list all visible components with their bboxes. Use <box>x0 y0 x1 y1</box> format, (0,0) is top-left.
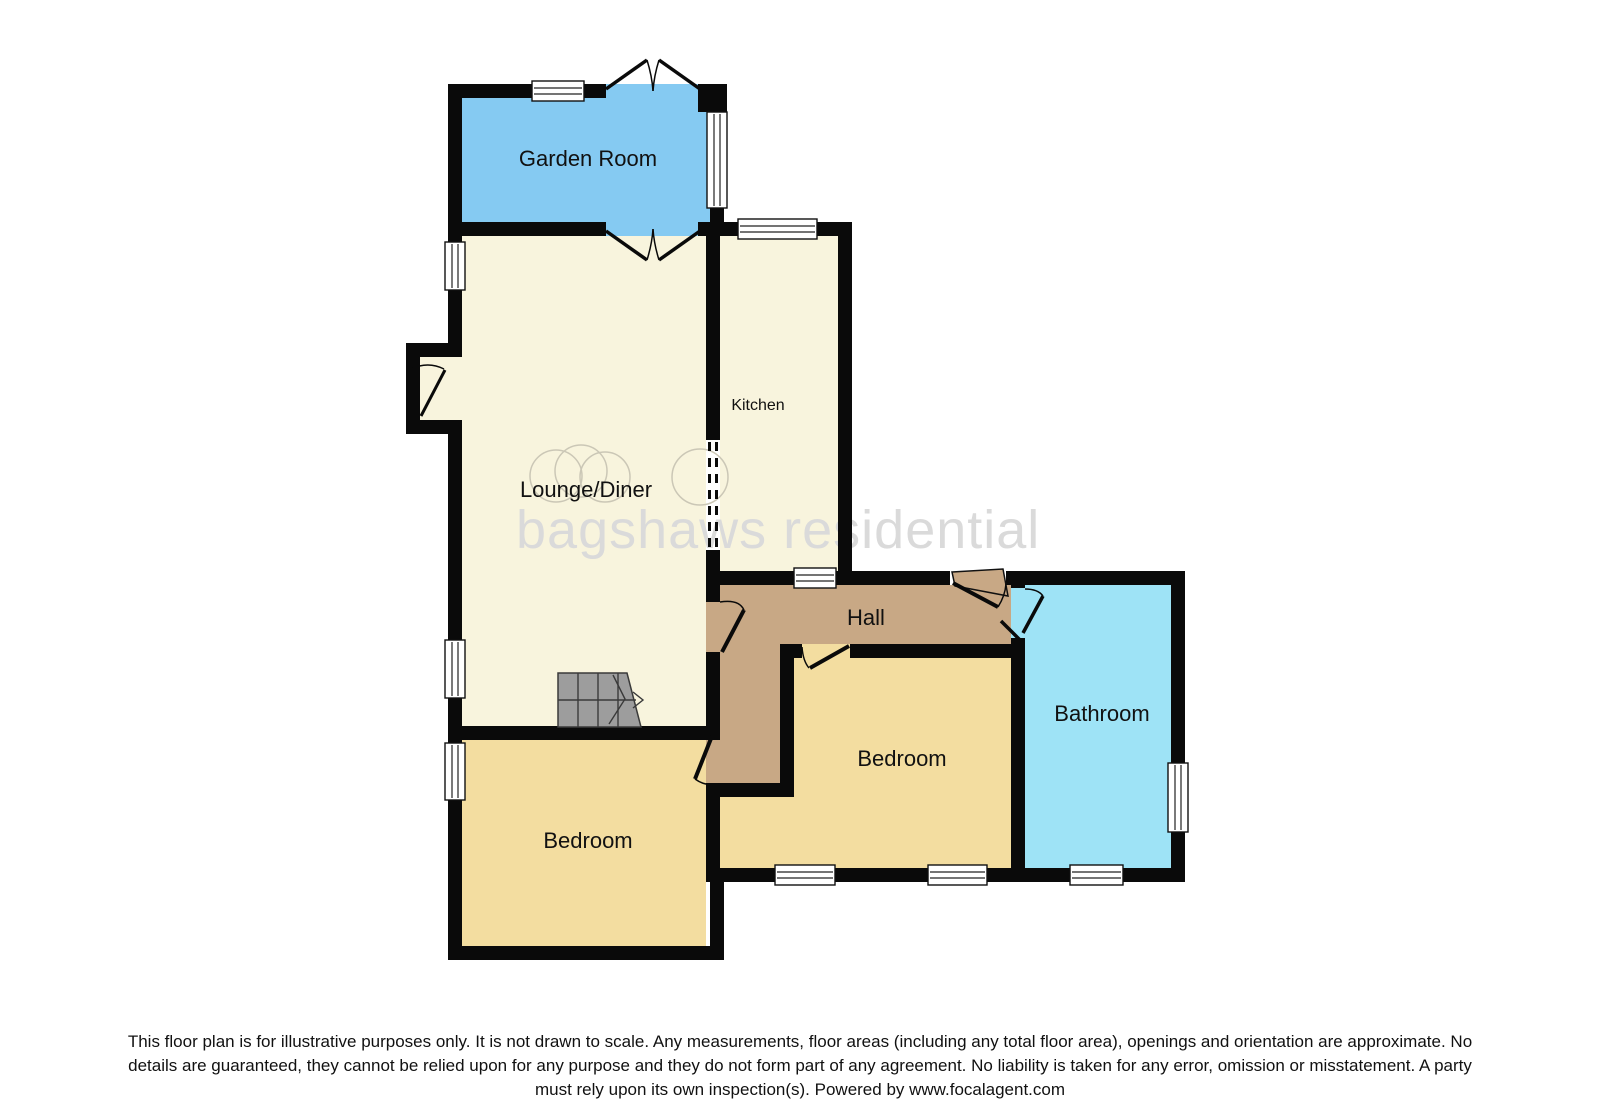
floorplan-page: bagshaws residential <box>0 0 1600 1120</box>
window <box>532 81 584 101</box>
label-bathroom: Bathroom <box>1054 701 1149 726</box>
window <box>1168 763 1188 832</box>
window <box>928 865 987 885</box>
disclaimer: This floor plan is for illustrative purp… <box>0 1030 1600 1102</box>
label-garden-room: Garden Room <box>519 146 657 171</box>
floorplan-canvas: bagshaws residential <box>0 0 1600 1120</box>
window <box>707 112 727 208</box>
watermark: bagshaws residential <box>516 500 1040 560</box>
label-bedroom-left: Bedroom <box>543 828 632 853</box>
window <box>445 242 465 290</box>
label-kitchen: Kitchen <box>731 397 784 414</box>
window <box>794 568 836 588</box>
disclaimer-line: This floor plan is for illustrative purp… <box>0 1030 1600 1054</box>
disclaimer-line: must rely upon its own inspection(s). Po… <box>0 1078 1600 1102</box>
window <box>445 743 465 800</box>
label-bedroom-right: Bedroom <box>857 746 946 771</box>
window <box>738 219 817 239</box>
window <box>775 865 835 885</box>
room-bathroom <box>1025 585 1171 868</box>
window <box>445 640 465 698</box>
label-hall: Hall <box>847 605 885 630</box>
disclaimer-line: details are guaranteed, they cannot be r… <box>0 1054 1600 1078</box>
label-lounge-diner: Lounge/Diner <box>520 477 652 502</box>
window <box>1070 865 1123 885</box>
